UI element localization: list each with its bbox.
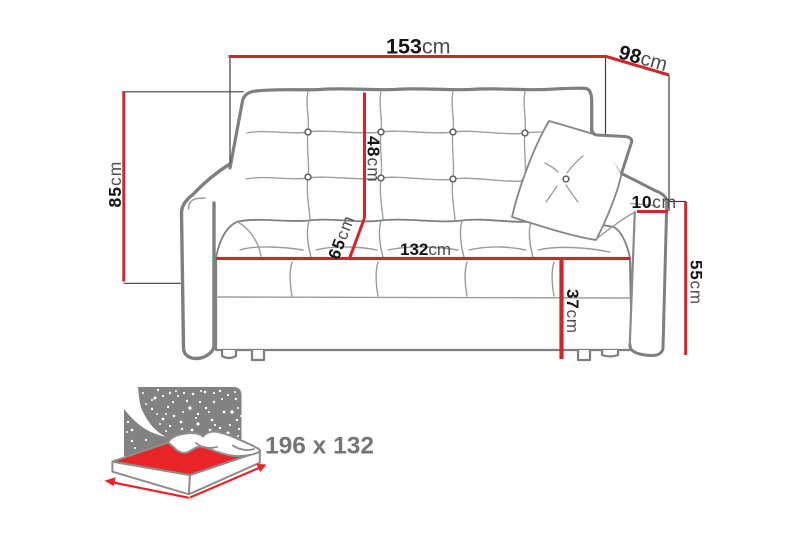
svg-text:55cm: 55cm xyxy=(686,260,705,305)
svg-text:48cm: 48cm xyxy=(364,136,384,183)
svg-text:37cm: 37cm xyxy=(563,289,582,334)
svg-text:85cm: 85cm xyxy=(105,161,125,208)
svg-text:132cm: 132cm xyxy=(400,240,451,259)
svg-text:153cm: 153cm xyxy=(386,35,451,59)
svg-text:10cm: 10cm xyxy=(632,192,677,212)
svg-text:98cm: 98cm xyxy=(616,42,670,76)
svg-text:196 x 132: 196 x 132 xyxy=(265,433,374,460)
